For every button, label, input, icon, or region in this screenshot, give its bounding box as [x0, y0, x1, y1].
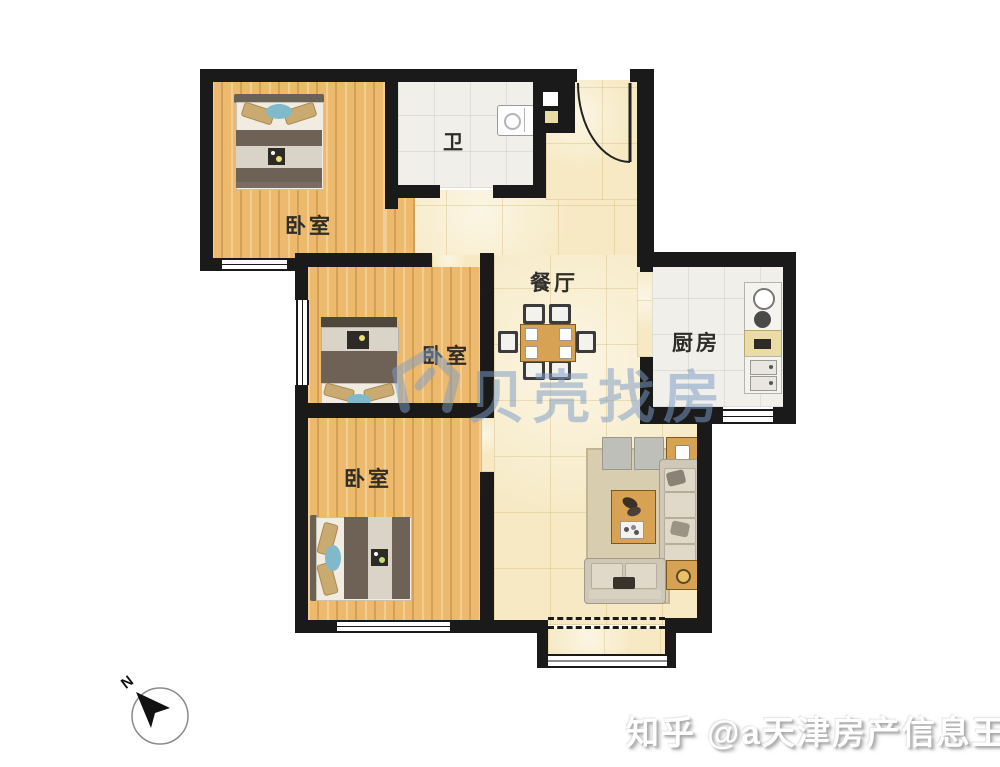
cabinet-unit	[744, 356, 782, 394]
bed-bottom	[310, 515, 410, 601]
microwave	[754, 339, 771, 349]
wall	[637, 252, 796, 267]
sofa-l-shaped	[659, 459, 701, 569]
wall	[640, 252, 653, 272]
floorplan-image: 卧室 卫 卧室 餐厅 厨房 卧室 贝壳找房 知乎 @a天津房产信息王 N	[0, 0, 1000, 767]
side-table	[666, 560, 698, 590]
cup	[675, 445, 690, 460]
coffee-table	[611, 490, 656, 544]
window	[296, 300, 309, 385]
wall	[480, 472, 494, 620]
wall	[295, 620, 337, 633]
beike-logo-icon	[383, 340, 467, 424]
bed-round-pillow	[266, 104, 292, 119]
wall	[773, 407, 796, 424]
tv-box	[347, 331, 369, 349]
dining-chair	[576, 331, 596, 353]
bed-tray	[268, 148, 285, 165]
living-room-set	[580, 430, 705, 605]
wall	[697, 407, 712, 620]
balcony-boundary-dash	[548, 617, 665, 620]
hall-floor	[390, 190, 648, 262]
wall	[783, 252, 796, 424]
room-label-bathroom: 卫	[443, 126, 466, 155]
phone	[676, 569, 691, 584]
bed-top-left	[234, 94, 324, 190]
tray	[620, 521, 644, 539]
brand-watermark-text: 贝壳找房	[468, 352, 728, 434]
loveseat	[584, 558, 666, 604]
dining-chair	[523, 304, 545, 324]
wall	[665, 618, 712, 633]
balcony-window	[548, 654, 667, 668]
kitchen-doorway-floor	[637, 272, 653, 357]
bed-round-pillow	[325, 545, 341, 571]
wall	[295, 385, 308, 633]
credit-watermark-text: 知乎 @a天津房产信息王	[626, 706, 1000, 754]
window	[337, 620, 450, 633]
wall	[637, 69, 654, 265]
wall	[200, 69, 213, 271]
ottoman	[602, 437, 632, 470]
kitchen-sink	[753, 288, 775, 310]
wall	[385, 185, 440, 198]
wall	[537, 620, 548, 668]
wall	[295, 253, 432, 267]
room-label-bedroom-bottom: 卧室	[344, 463, 392, 493]
bed-footboard	[321, 317, 397, 327]
room-label-dining: 餐厅	[530, 267, 578, 297]
wall	[450, 620, 548, 633]
kitchen-counter	[744, 282, 780, 392]
bed-footboard	[236, 182, 322, 188]
wall	[493, 185, 538, 198]
washing-machine	[497, 105, 535, 136]
compass: N	[118, 672, 198, 752]
dining-chair	[549, 304, 571, 324]
dining-chair	[498, 331, 518, 353]
balcony-boundary-dash	[548, 626, 665, 629]
sink-unit	[744, 282, 782, 332]
stove-burner	[754, 311, 771, 328]
bed-tray	[371, 549, 388, 566]
window	[723, 409, 773, 424]
counter-mid	[744, 330, 782, 358]
window	[222, 258, 287, 271]
room-label-bedroom-top-left: 卧室	[285, 210, 333, 240]
pipe-shaft-face	[533, 69, 575, 133]
laptop	[613, 577, 635, 589]
wall	[200, 258, 222, 271]
entry-door-icon	[575, 80, 635, 166]
